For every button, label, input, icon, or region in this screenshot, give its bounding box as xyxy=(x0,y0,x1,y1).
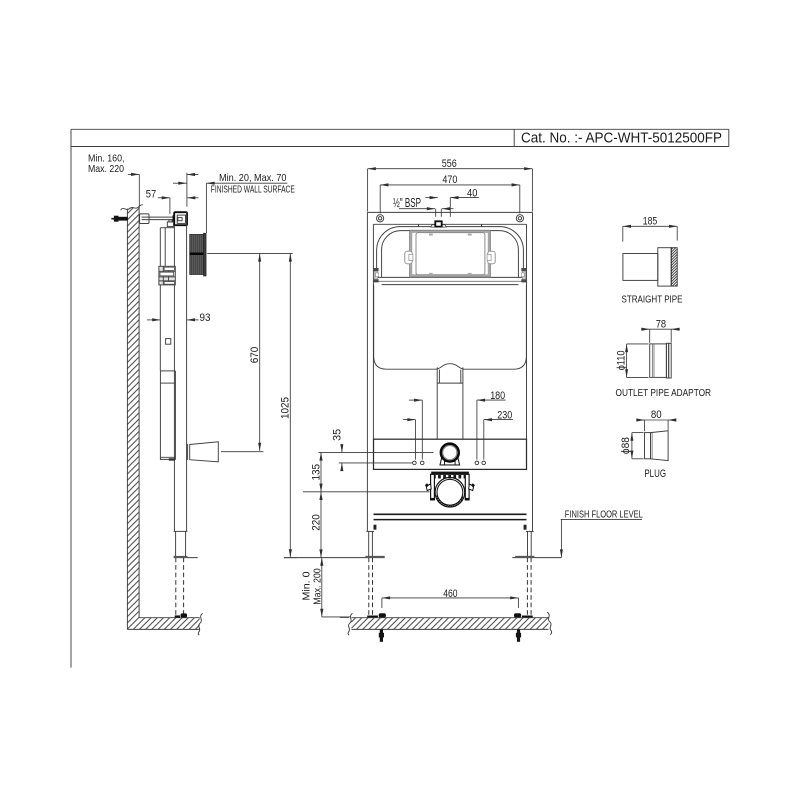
svg-text:STRAIGHT PIPE: STRAIGHT PIPE xyxy=(622,294,683,305)
svg-text:1025: 1025 xyxy=(280,397,292,419)
svg-text:Cat. No. :- APC-WHT-5012500FP: Cat. No. :- APC-WHT-5012500FP xyxy=(521,131,722,147)
svg-text:Min. 20, Max. 70: Min. 20, Max. 70 xyxy=(219,173,287,184)
svg-text:35: 35 xyxy=(332,429,344,441)
svg-text:Max. 220: Max. 220 xyxy=(88,164,124,175)
svg-text:57: 57 xyxy=(146,189,156,201)
svg-text:ϕ110: ϕ110 xyxy=(615,350,627,370)
svg-text:OUTLET PIPE ADAPTOR: OUTLET PIPE ADAPTOR xyxy=(616,388,712,399)
svg-text:Min. 160,: Min. 160, xyxy=(88,153,125,164)
svg-text:470: 470 xyxy=(442,174,457,186)
svg-text:FINISH FLOOR LEVEL: FINISH FLOOR LEVEL xyxy=(565,509,643,520)
svg-text:78: 78 xyxy=(656,318,666,330)
svg-text:93: 93 xyxy=(200,312,211,324)
svg-text:FINISHED WALL SURFACE: FINISHED WALL SURFACE xyxy=(211,185,295,196)
svg-text:PLUG: PLUG xyxy=(644,468,666,480)
svg-text:556: 556 xyxy=(442,158,457,170)
svg-text:670: 670 xyxy=(249,347,261,364)
svg-text:185: 185 xyxy=(643,215,658,227)
svg-text:80: 80 xyxy=(651,409,662,421)
svg-text:Min. 0: Min. 0 xyxy=(302,571,313,600)
svg-text:ϕ88: ϕ88 xyxy=(620,437,632,454)
svg-text:½" BSP: ½" BSP xyxy=(393,196,421,210)
